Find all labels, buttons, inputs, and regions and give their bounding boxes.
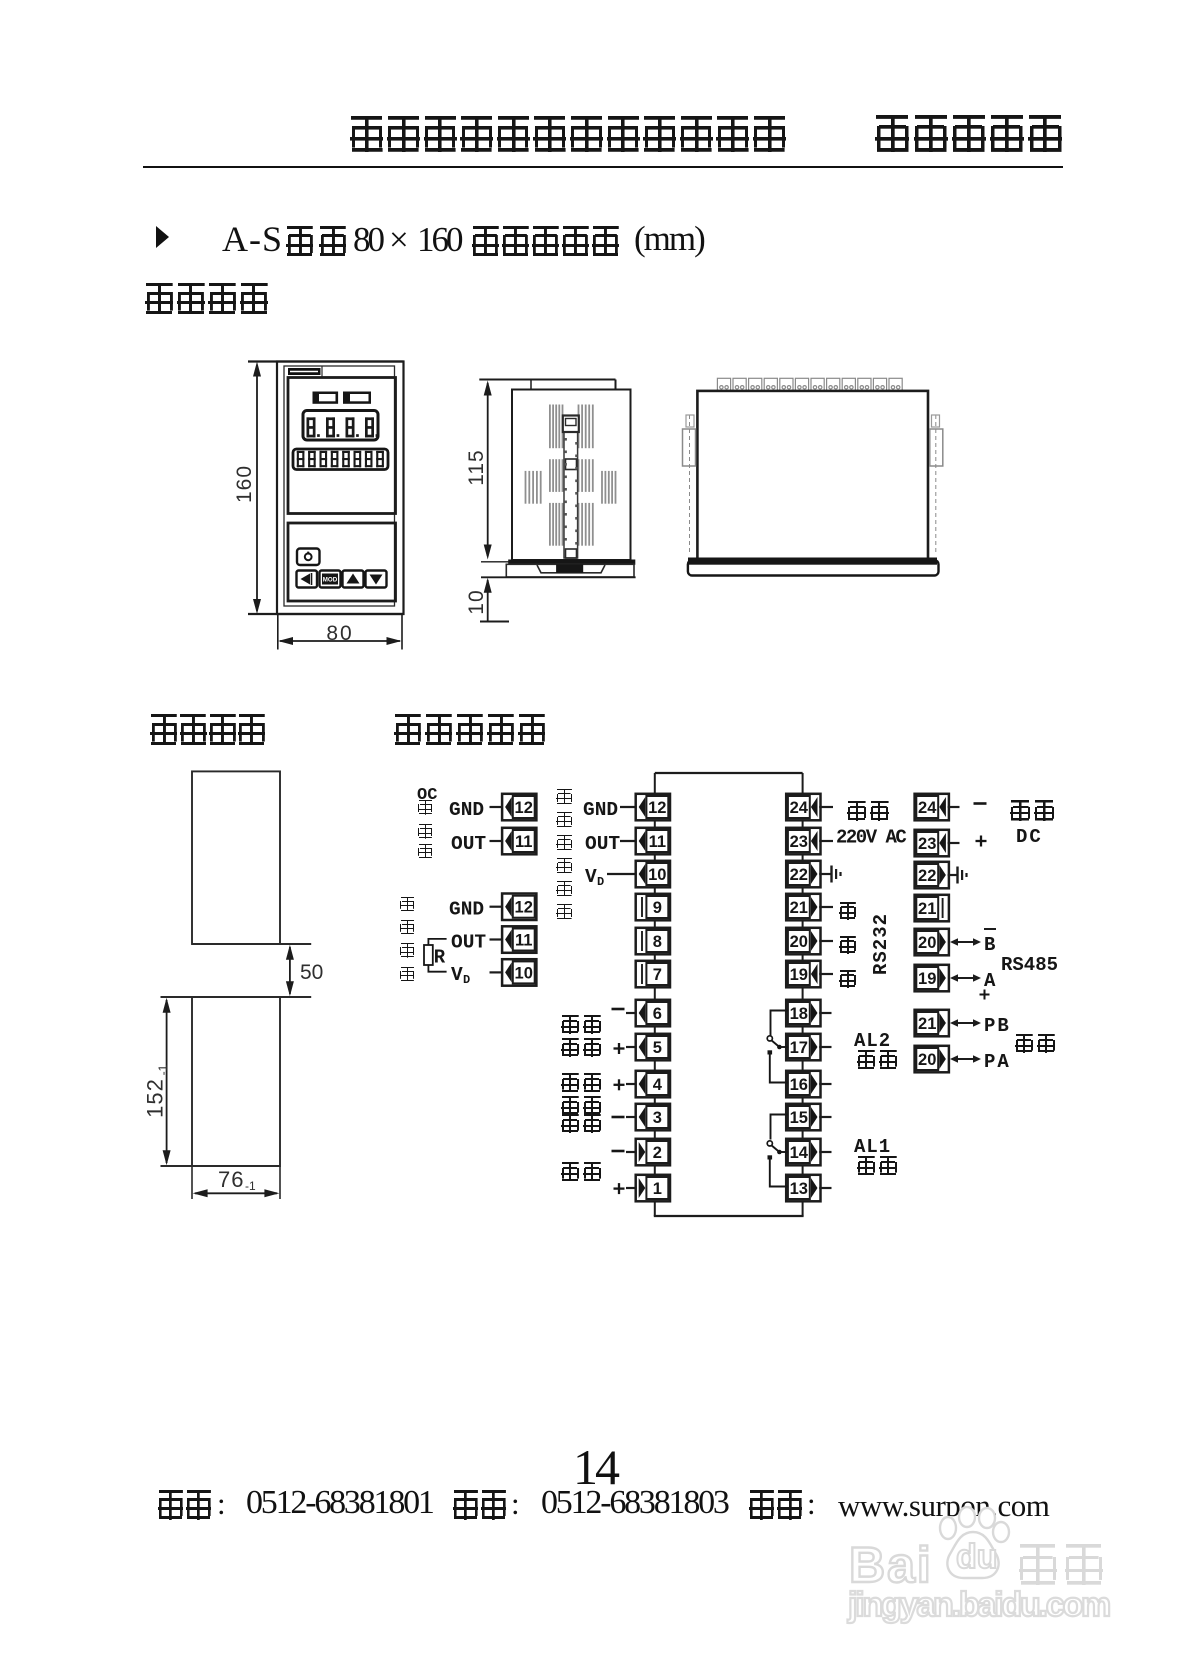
svg-text:5: 5 [653,1039,662,1057]
svg-text:10: 10 [515,964,533,982]
svg-text:11: 11 [515,833,532,851]
svg-text:20: 20 [918,1051,936,1069]
svg-text:80: 80 [326,622,353,645]
svg-text:AL1: AL1 [854,1136,891,1158]
svg-text:115: 115 [465,449,488,485]
svg-text:RS232: RS232 [870,913,892,975]
svg-text:DC: DC [1016,826,1043,848]
svg-text:23: 23 [918,835,936,853]
svg-text:17: 17 [790,1039,808,1057]
svg-text:12: 12 [515,799,533,817]
svg-text:76: 76 [218,1167,244,1192]
svg-text:OUT: OUT [585,833,620,855]
svg-text:OUT: OUT [451,833,486,855]
svg-text:19: 19 [918,970,936,988]
svg-text:GND: GND [583,799,618,821]
svg-text:D: D [463,973,470,987]
svg-text:V: V [585,866,597,888]
svg-text:V: V [451,964,463,986]
svg-text:152: 152 [143,1078,168,1118]
svg-text:21: 21 [918,900,936,918]
svg-text:10: 10 [648,866,666,884]
svg-text:PB: PB [984,1015,1011,1037]
svg-text:D: D [597,875,604,889]
svg-text:OUT: OUT [451,932,486,954]
svg-text:du: du [956,1538,998,1576]
svg-text:AL2: AL2 [854,1030,891,1052]
svg-text:RS485: RS485 [1001,954,1058,976]
svg-text:24: 24 [918,799,937,817]
svg-text:11: 11 [515,931,532,949]
svg-text:220V AC: 220V AC [836,827,906,849]
svg-text:A: A [984,970,996,992]
svg-text:R: R [434,947,446,969]
svg-text:10: 10 [465,589,488,614]
svg-text:3: 3 [653,1109,662,1127]
svg-text:PA: PA [984,1051,1011,1073]
svg-text:GND: GND [449,899,484,921]
svg-text:16: 16 [790,1076,808,1094]
svg-text:50: 50 [300,961,323,984]
svg-text:21: 21 [918,1015,936,1033]
svg-text:20: 20 [918,934,936,952]
svg-text:8: 8 [653,933,662,951]
svg-text:14: 14 [790,1144,809,1162]
svg-text:-1: -1 [156,1064,170,1075]
svg-text:7: 7 [653,966,662,984]
svg-text:13: 13 [790,1180,808,1198]
svg-text:6: 6 [653,1005,662,1023]
svg-text:22: 22 [918,867,936,885]
svg-text:4: 4 [653,1076,663,1094]
svg-text:2: 2 [653,1144,662,1162]
svg-text:24: 24 [790,799,809,817]
svg-text:15: 15 [790,1109,808,1127]
svg-text:18: 18 [790,1005,808,1023]
svg-text:160: 160 [233,465,256,503]
svg-text:MOD: MOD [323,577,338,584]
svg-text:22: 22 [790,866,808,884]
svg-text:19: 19 [790,966,808,984]
svg-text:12: 12 [515,899,533,917]
svg-text:-1: -1 [245,1179,256,1193]
svg-text:9: 9 [653,899,662,917]
svg-text:B: B [984,934,995,956]
svg-text:23: 23 [790,833,808,851]
svg-text:GND: GND [449,799,484,821]
svg-text:11: 11 [649,833,666,851]
svg-text:20: 20 [790,933,808,951]
svg-text:21: 21 [790,899,808,917]
svg-text:12: 12 [648,799,666,817]
svg-text:1: 1 [653,1180,662,1198]
